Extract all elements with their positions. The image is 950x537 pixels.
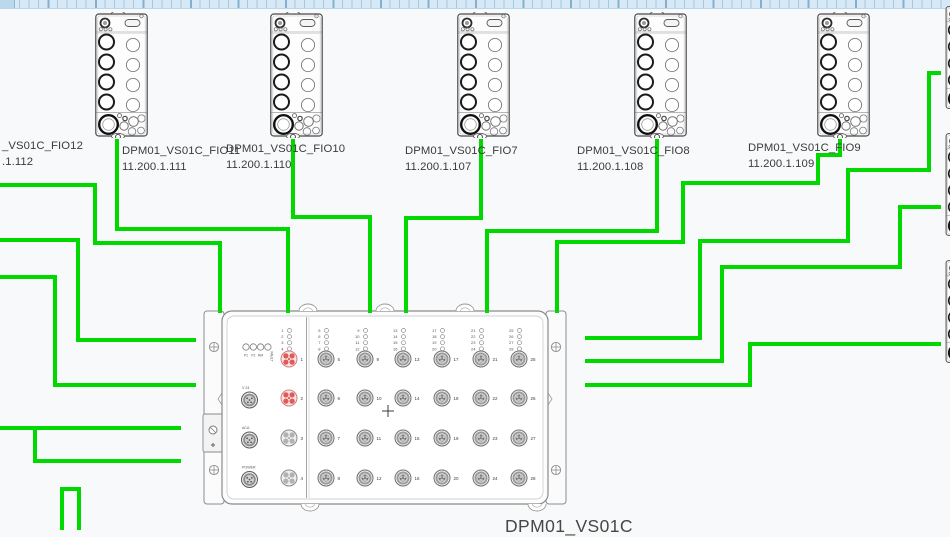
wire-right-bottom[interactable] [585, 344, 941, 385]
svg-text:24: 24 [471, 346, 476, 351]
mounting-ear-left [204, 311, 224, 504]
svg-text:16: 16 [415, 476, 421, 481]
svg-text:13: 13 [393, 328, 398, 333]
svg-text:20: 20 [432, 346, 437, 351]
svg-text:22: 22 [493, 396, 499, 401]
device-ip-address: .1.112 [2, 155, 83, 171]
svg-text:14: 14 [393, 334, 398, 339]
aux-connector-power[interactable]: POWER [242, 466, 258, 488]
io-module-fio9[interactable] [818, 11, 869, 139]
svg-text:15: 15 [393, 340, 398, 345]
io-module-fio11[interactable] [96, 11, 147, 139]
device-label-fio10: DPM01_VS01C_FIO1011.200.1.110 [226, 142, 345, 173]
device-name: DPM01_VS01C_FIO8 [577, 144, 690, 160]
device-name: DPM01_VS01C_FIO10 [226, 142, 345, 158]
svg-text:13: 13 [415, 357, 421, 362]
svg-text:16: 16 [393, 346, 398, 351]
svg-text:28: 28 [531, 476, 537, 481]
right-module-mid[interactable] [946, 131, 950, 238]
svg-text:26: 26 [531, 396, 537, 401]
svg-text:12: 12 [355, 346, 360, 351]
wire-left-a[interactable] [0, 240, 196, 340]
status-led-fault [265, 344, 271, 350]
din-rail-clip [203, 414, 223, 452]
svg-text:19: 19 [454, 436, 460, 441]
svg-text:17: 17 [432, 328, 437, 333]
io-module-fio10[interactable] [271, 11, 322, 139]
device-ip-address: 11.200.1.110 [226, 158, 345, 174]
mounting-ear-right [546, 311, 566, 504]
central-device[interactable]: P1P2RMFAULTV 24ACAPOWER12341234567856789… [203, 304, 566, 511]
svg-text:18: 18 [454, 396, 460, 401]
device-ip-address: 11.200.1.111 [122, 160, 240, 176]
wire-fio12[interactable] [0, 185, 220, 313]
svg-text:28: 28 [509, 346, 514, 351]
svg-text:12: 12 [377, 476, 383, 481]
device-label-fio7: DPM01_VS01C_FIO711.200.1.107 [405, 144, 518, 175]
device-name: DPM01_VS01C_FIO9 [748, 141, 861, 157]
svg-text:P1: P1 [244, 354, 248, 358]
svg-text:23: 23 [493, 436, 499, 441]
svg-text:14: 14 [415, 396, 421, 401]
svg-text:FAULT: FAULT [270, 352, 274, 362]
svg-text:25: 25 [531, 357, 537, 362]
status-led-rm [257, 344, 263, 350]
svg-text:18: 18 [432, 334, 437, 339]
svg-text:15: 15 [415, 436, 421, 441]
device-label-fio9: DPM01_VS01C_FIO911.200.1.109 [748, 141, 861, 172]
io-module-fio7[interactable] [458, 11, 509, 139]
svg-text:10: 10 [377, 396, 383, 401]
svg-text:25: 25 [509, 328, 514, 333]
svg-text:RM: RM [258, 354, 263, 358]
svg-text:21: 21 [471, 328, 476, 333]
svg-text:22: 22 [471, 334, 476, 339]
device-label-fio8: DPM01_VS01C_FIO811.200.1.108 [577, 144, 690, 175]
device-name: DPM01_VS01C_FIO7 [405, 144, 518, 160]
svg-text:ACA: ACA [242, 426, 250, 430]
svg-text:27: 27 [509, 340, 514, 345]
central-device-label: DPM01_VS01C [505, 516, 633, 537]
device-ip-address: 11.200.1.109 [748, 157, 861, 173]
svg-text:24: 24 [493, 476, 499, 481]
topology-canvas: P1P2RMFAULTV 24ACAPOWER12341234567856789… [0, 0, 950, 530]
svg-text:17: 17 [454, 357, 460, 362]
svg-text:V 24: V 24 [242, 386, 249, 390]
io-module-fio8[interactable] [635, 11, 686, 139]
svg-text:23: 23 [471, 340, 476, 345]
wire-left-e[interactable] [62, 489, 79, 530]
svg-text:P2: P2 [251, 354, 255, 358]
device-label-fio11: DPM01_VS01C_FIO1111.200.1.111 [122, 144, 240, 175]
right-module-bottom[interactable] [946, 258, 950, 365]
device-name: DPM01_VS01C_FIO11 [122, 144, 240, 160]
device-ip-address: 11.200.1.108 [577, 160, 690, 176]
status-led-p1 [243, 344, 249, 350]
svg-text:20: 20 [454, 476, 460, 481]
wire-left-b[interactable] [0, 277, 196, 385]
svg-text:21: 21 [493, 357, 499, 362]
svg-text:27: 27 [531, 436, 537, 441]
svg-text:26: 26 [509, 334, 514, 339]
right-module-top[interactable] [946, 4, 950, 111]
svg-text:19: 19 [432, 340, 437, 345]
device-name: _VS01C_FIO12 [2, 139, 83, 155]
svg-text:POWER: POWER [242, 466, 256, 470]
status-led-p2 [250, 344, 256, 350]
device-ip-address: 11.200.1.107 [405, 160, 518, 176]
wire-left-d[interactable] [35, 426, 181, 461]
svg-text:11: 11 [377, 436, 382, 441]
device-label-fio12: _VS01C_FIO12.1.112 [2, 139, 83, 170]
svg-text:10: 10 [355, 334, 360, 339]
